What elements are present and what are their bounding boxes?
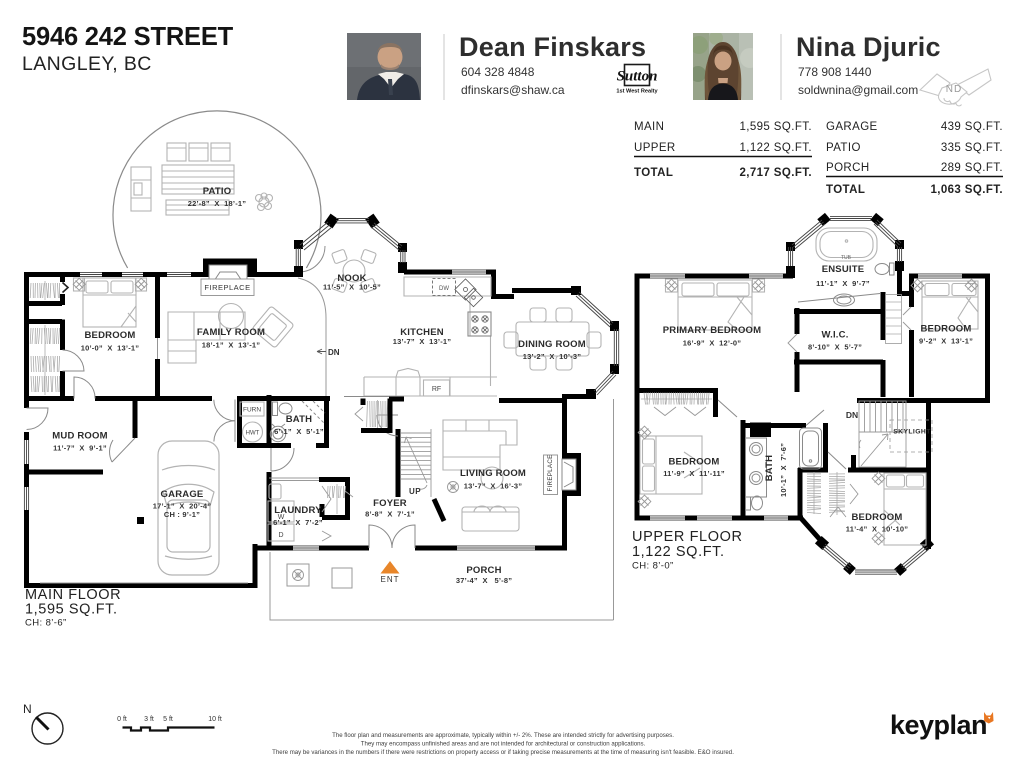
svg-text:TOTAL: TOTAL [826, 184, 865, 196]
svg-text:1st West Realty: 1st West Realty [616, 89, 658, 95]
svg-text:DW: DW [439, 286, 449, 292]
svg-text:22’-8” X 18’-1”: 22’-8” X 18’-1” [188, 199, 246, 208]
svg-text:GARAGE: GARAGE [826, 121, 878, 133]
svg-text:SKYLIGHT: SKYLIGHT [893, 429, 931, 436]
svg-text:HWT: HWT [246, 431, 260, 437]
svg-text:8’-10” X 5’-7”: 8’-10” X 5’-7” [808, 343, 862, 352]
svg-text:PATIO: PATIO [826, 142, 861, 154]
svg-text:13’-7” X 16’-3”: 13’-7” X 16’-3” [464, 482, 522, 491]
svg-text:Sutton: Sutton [617, 69, 658, 85]
svg-text:6’-1” X 7’-2”: 6’-1” X 7’-2” [273, 518, 323, 527]
svg-text:FIREPLACE: FIREPLACE [547, 454, 554, 491]
svg-text:LIVING ROOM: LIVING ROOM [460, 468, 526, 479]
svg-text:5946 242 STREET: 5946 242 STREET [22, 23, 234, 51]
svg-text:18’-1” X 13’-1”: 18’-1” X 13’-1” [202, 341, 260, 350]
svg-text:439 SQ.FT.: 439 SQ.FT. [941, 121, 1003, 133]
svg-text:PATIO: PATIO [203, 186, 232, 197]
svg-text:DN: DN [846, 410, 858, 420]
svg-text:1,595 SQ.FT.: 1,595 SQ.FT. [739, 121, 812, 133]
svg-text:MUD ROOM: MUD ROOM [52, 431, 107, 442]
svg-text:GARAGE: GARAGE [161, 489, 204, 500]
svg-text:335 SQ.FT.: 335 SQ.FT. [941, 142, 1003, 154]
svg-text:LAUNDRY: LAUNDRY [274, 505, 322, 516]
svg-text:RF: RF [432, 386, 441, 393]
svg-text:BEDROOM: BEDROOM [84, 330, 135, 341]
svg-text:PORCH: PORCH [826, 162, 870, 174]
svg-text:ENT: ENT [381, 575, 400, 584]
svg-text:The floor plan and measurement: The floor plan and measurements are appr… [332, 732, 674, 739]
svg-text:BATH: BATH [286, 414, 312, 425]
svg-text:PRIMARY BEDROOM: PRIMARY BEDROOM [663, 325, 762, 336]
svg-text:BATH: BATH [764, 455, 775, 481]
svg-text:UPPER FLOOR: UPPER FLOOR [632, 529, 743, 545]
svg-text:FURN: FURN [243, 407, 261, 414]
svg-text:UPPER: UPPER [634, 142, 676, 154]
svg-text:10’-0” X 13’-1”: 10’-0” X 13’-1” [81, 344, 139, 353]
svg-text:8’-8” X 7’-1”: 8’-8” X 7’-1” [365, 510, 415, 519]
svg-text:ND: ND [946, 84, 962, 95]
svg-text:CH: 8’-0”: CH: 8’-0” [632, 561, 674, 572]
svg-text:10’-1” X 7’-6”: 10’-1” X 7’-6” [779, 443, 788, 497]
svg-text:1,063 SQ.FT.: 1,063 SQ.FT. [930, 184, 1003, 196]
svg-text:1,595 SQ.FT.: 1,595 SQ.FT. [25, 602, 118, 618]
svg-text:DN: DN [328, 348, 340, 357]
svg-text:0 ft: 0 ft [117, 716, 127, 723]
svg-text:W.I.C.: W.I.C. [821, 330, 848, 341]
svg-text:16’-9” X 12’-0”: 16’-9” X 12’-0” [683, 339, 741, 348]
svg-text:Dean Finskars: Dean Finskars [459, 32, 646, 62]
svg-text:UP: UP [409, 487, 421, 496]
svg-text:ENSUITE: ENSUITE [822, 264, 865, 275]
svg-text:11’-9” X 11’-11”: 11’-9” X 11’-11” [663, 469, 725, 478]
svg-text:TOTAL: TOTAL [634, 167, 673, 179]
svg-text:FAMILY ROOM: FAMILY ROOM [197, 327, 265, 338]
svg-text:soldwnina@gmail.com: soldwnina@gmail.com [798, 83, 918, 97]
svg-text:D: D [278, 532, 283, 539]
svg-text:11’-1” X 9’-7”: 11’-1” X 9’-7” [816, 279, 870, 288]
svg-text:37’-4” X 5’-8”: 37’-4” X 5’-8” [456, 576, 512, 585]
svg-text:keyplan: keyplan [890, 710, 987, 740]
svg-text:2,717 SQ.FT.: 2,717 SQ.FT. [739, 167, 812, 179]
svg-text:PORCH: PORCH [466, 565, 501, 576]
svg-text:DINING ROOM: DINING ROOM [518, 339, 586, 350]
svg-text:N: N [23, 702, 32, 716]
svg-text:11’-5” X 10’-5”: 11’-5” X 10’-5” [323, 283, 381, 292]
svg-text:BEDROOM: BEDROOM [851, 512, 902, 523]
svg-text:11’-7” X 9’-1”: 11’-7” X 9’-1” [53, 444, 107, 453]
svg-text:FOYER: FOYER [373, 498, 407, 509]
svg-text:FIREPLACE: FIREPLACE [204, 283, 250, 292]
svg-text:1,122 SQ.FT.: 1,122 SQ.FT. [632, 544, 725, 560]
svg-text:BEDROOM: BEDROOM [668, 457, 719, 468]
svg-text:3 ft: 3 ft [144, 716, 154, 723]
svg-text:10 ft: 10 ft [208, 716, 222, 723]
svg-text:604 328 4848: 604 328 4848 [461, 65, 535, 79]
svg-text:9’-2” X 13’-1”: 9’-2” X 13’-1” [919, 337, 973, 346]
svg-text:CH : 9’-1”: CH : 9’-1” [164, 510, 200, 519]
svg-text:Nina Djuric: Nina Djuric [796, 32, 941, 62]
svg-text:778 908 1440: 778 908 1440 [798, 65, 872, 79]
svg-text:They may encompass unfinished: They may encompass unfinished areas and … [361, 741, 646, 748]
svg-text:289 SQ.FT.: 289 SQ.FT. [941, 162, 1003, 174]
svg-text:There may be variances in the: There may be variances in the numbers if… [272, 749, 734, 756]
svg-text:CH: 8’-6”: CH: 8’-6” [25, 618, 67, 629]
svg-text:5 ft: 5 ft [163, 716, 173, 723]
svg-text:6’-1” X 5’-1”: 6’-1” X 5’-1” [274, 427, 324, 436]
svg-text:dfinskars@shaw.ca: dfinskars@shaw.ca [461, 83, 565, 97]
svg-text:BEDROOM: BEDROOM [920, 324, 971, 335]
svg-text:MAIN: MAIN [634, 121, 664, 133]
svg-text:TUB: TUB [841, 255, 852, 261]
svg-text:13’-7” X 13’-1”: 13’-7” X 13’-1” [393, 337, 451, 346]
svg-text:1,122 SQ.FT.: 1,122 SQ.FT. [739, 142, 812, 154]
svg-text:LANGLEY, BC: LANGLEY, BC [22, 53, 152, 75]
svg-text:13’-2” X 10’-3”: 13’-2” X 10’-3” [523, 352, 581, 361]
svg-text:11’-4” X 10’-10”: 11’-4” X 10’-10” [846, 525, 908, 534]
